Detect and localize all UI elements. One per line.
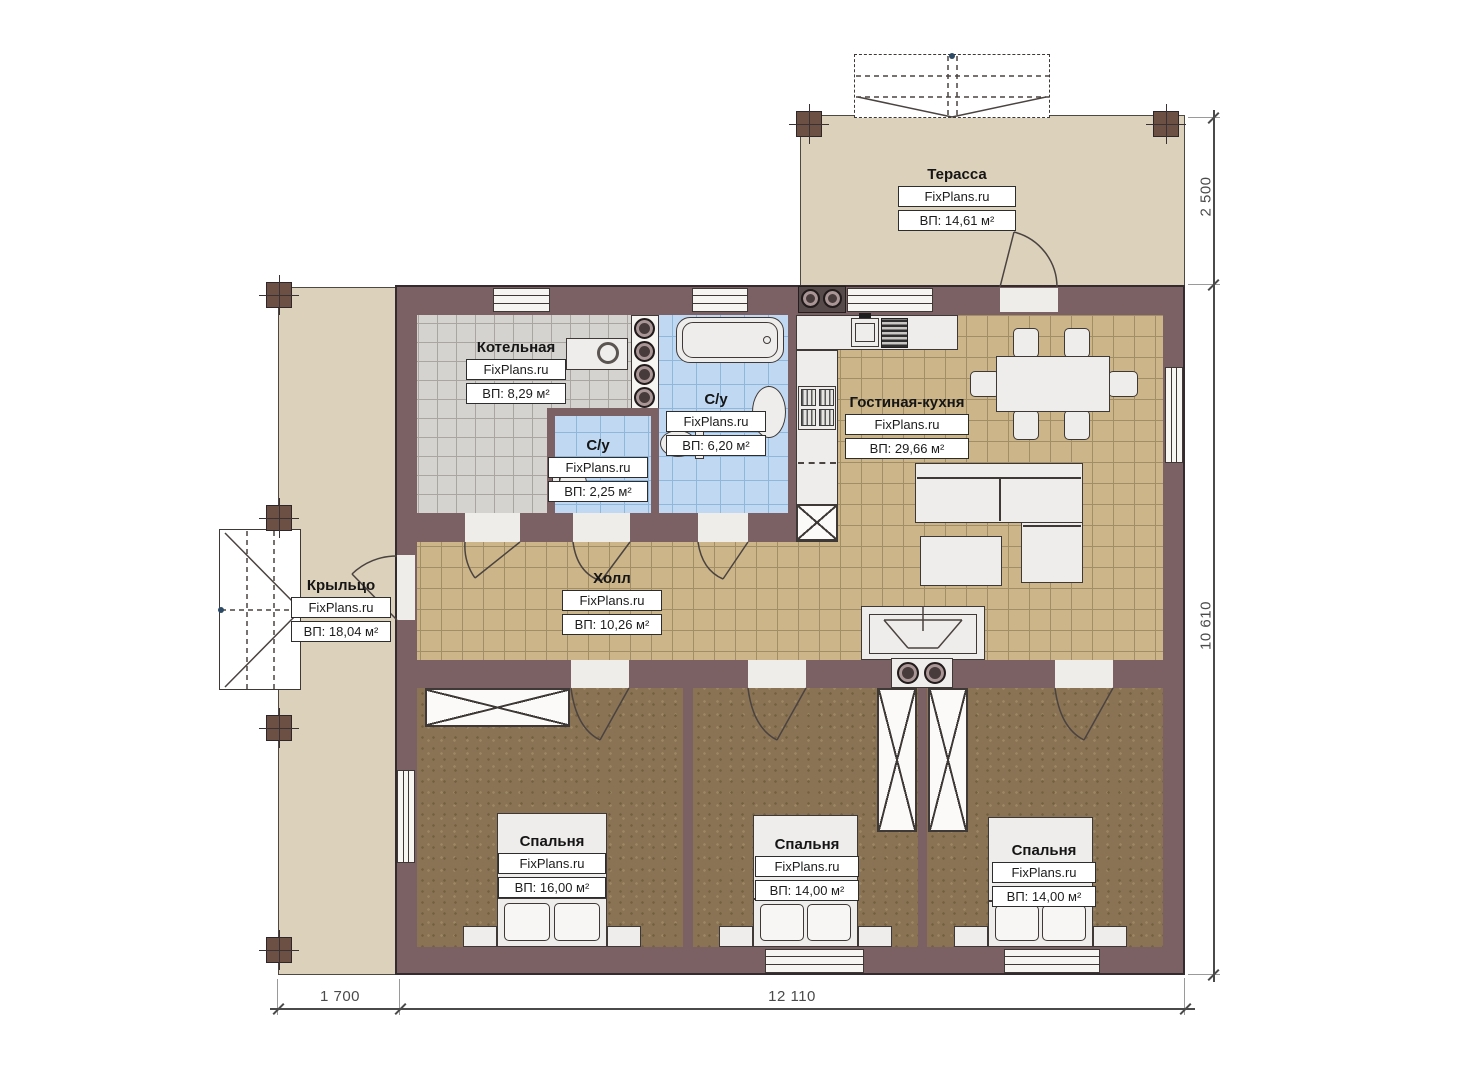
boiler-tank-icon	[634, 318, 655, 339]
brand-label: FixPlans.ru	[992, 862, 1096, 883]
bedroom-2-door-opening	[748, 660, 806, 688]
room-title: Котельная	[466, 339, 566, 356]
fireplace-inner	[869, 614, 977, 654]
nightstand	[719, 926, 753, 947]
stove-grate-icon	[819, 409, 834, 426]
dining-chair	[1013, 410, 1039, 440]
bedroom-2-3-wall	[918, 688, 927, 947]
bedroom-1-door-opening	[571, 660, 629, 688]
bed-3-pillow	[1042, 905, 1086, 941]
room-label-bathroom-small: С/у FixPlans.ru ВП: 2,25 м²	[548, 437, 648, 502]
dimension-line-right	[1213, 110, 1215, 982]
area-label: ВП: 16,00 м²	[498, 877, 606, 898]
room-label-bathroom-large: С/у FixPlans.ru ВП: 6,20 м²	[666, 391, 766, 456]
room-title: Спальня	[755, 836, 859, 853]
brand-label: FixPlans.ru	[291, 597, 391, 618]
washing-machine-door-icon	[597, 342, 619, 364]
room-title: Спальня	[498, 833, 606, 850]
living-window	[1165, 367, 1183, 463]
area-label: ВП: 29,66 м²	[845, 438, 969, 459]
dining-chair	[1013, 328, 1039, 358]
area-label: ВП: 14,00 м²	[755, 880, 859, 901]
dining-chair	[1064, 328, 1090, 358]
room-label-bedroom-3: Спальня FixPlans.ru ВП: 14,00 м²	[992, 842, 1096, 907]
brand-label: FixPlans.ru	[845, 414, 969, 435]
kitchen-window	[847, 288, 933, 312]
cooktop-burner-icon	[801, 289, 820, 308]
kitchen-faucet-icon	[859, 313, 871, 318]
porch-post	[266, 282, 292, 308]
bed-2-pillow	[760, 904, 804, 941]
terrace-post	[796, 111, 822, 137]
nightstand	[463, 926, 497, 947]
dimension-line-bottom	[270, 1008, 1195, 1010]
room-label-bedroom-2: Спальня FixPlans.ru ВП: 14,00 м²	[755, 836, 859, 901]
area-label: ВП: 10,26 м²	[562, 614, 662, 635]
bathroom-small-door-opening	[573, 513, 630, 542]
flue-pipe-icon	[924, 662, 946, 684]
bedroom-3-window	[1004, 949, 1100, 973]
brand-label: FixPlans.ru	[548, 457, 648, 478]
cooktop-burner-icon	[823, 289, 842, 308]
boiler-tank-icon	[634, 364, 655, 385]
room-label-terrace: Терасса FixPlans.ru ВП: 14,61 м²	[898, 166, 1016, 231]
brand-label: FixPlans.ru	[898, 186, 1016, 207]
boiler-tank-icon	[634, 387, 655, 408]
stove-grate-icon	[819, 389, 834, 406]
porch-post	[266, 715, 292, 741]
porch-post	[266, 937, 292, 963]
dishwasher	[881, 318, 908, 348]
room-title: Холл	[562, 570, 662, 587]
kitchen-sink-basin	[855, 323, 875, 342]
nightstand	[858, 926, 892, 947]
bedroom-2-window	[765, 949, 864, 973]
wardrobe-bedroom-3	[928, 688, 968, 832]
dimension-porch-width: 1 700	[305, 988, 375, 1005]
area-label: ВП: 18,04 м²	[291, 621, 391, 642]
sofa-chaise-line	[1023, 525, 1081, 527]
area-label: ВП: 2,25 м²	[548, 481, 648, 502]
brand-label: FixPlans.ru	[498, 853, 606, 874]
entry-door-opening	[397, 555, 415, 620]
coffee-table	[920, 536, 1002, 586]
terrace-steps	[854, 54, 1050, 118]
flue-pipe-icon	[897, 662, 919, 684]
bedroom-1-2-wall	[683, 688, 693, 947]
dimension-house-width: 12 110	[752, 988, 832, 1005]
brand-label: FixPlans.ru	[755, 856, 859, 877]
room-title: С/у	[666, 391, 766, 408]
room-label-boiler: Котельная FixPlans.ru ВП: 8,29 м²	[466, 339, 566, 404]
area-label: ВП: 8,29 м²	[466, 383, 566, 404]
room-label-hall: Холл FixPlans.ru ВП: 10,26 м²	[562, 570, 662, 635]
bathroom-large-door-opening	[698, 513, 748, 542]
bedroom-1-window	[397, 770, 415, 863]
wardrobe-bedroom-1	[425, 688, 570, 727]
bedroom-3-door-opening	[1055, 660, 1113, 688]
porch-steps	[219, 529, 301, 690]
room-title: Гостиная-кухня	[845, 394, 969, 411]
area-label: ВП: 14,61 м²	[898, 210, 1016, 231]
nightstand	[954, 926, 988, 947]
room-label-living-kitchen: Гостиная-кухня FixPlans.ru ВП: 29,66 м²	[845, 394, 969, 459]
dining-table	[996, 356, 1110, 412]
terrace-post	[1153, 111, 1179, 137]
porch-post	[266, 505, 292, 531]
dimension-terrace-depth: 2 500	[1198, 162, 1215, 232]
area-label: ВП: 6,20 м²	[666, 435, 766, 456]
bed-2-pillow	[807, 904, 851, 941]
boiler-door-opening	[465, 513, 520, 542]
room-title: Крыльцо	[291, 577, 391, 594]
room-title: С/у	[548, 437, 648, 454]
boiler-window	[493, 288, 550, 312]
brand-label: FixPlans.ru	[466, 359, 566, 380]
room-title: Терасса	[898, 166, 1016, 183]
nightstand	[607, 926, 641, 947]
bed-1-pillow	[504, 903, 550, 941]
bathroom-window	[692, 288, 748, 312]
bathroom-kitchen-wall	[788, 315, 796, 542]
fridge	[796, 504, 838, 541]
room-title: Спальня	[992, 842, 1096, 859]
stove-grate-icon	[801, 389, 816, 406]
bathtub-drain-icon	[763, 336, 771, 344]
dining-chair	[1108, 371, 1138, 397]
stove-grate-icon	[801, 409, 816, 426]
room-label-bedroom-1: Спальня FixPlans.ru ВП: 16,00 м²	[498, 833, 606, 898]
area-label: ВП: 14,00 м²	[992, 886, 1096, 907]
boiler-tank-icon	[634, 341, 655, 362]
nightstand	[1093, 926, 1127, 947]
brand-label: FixPlans.ru	[666, 411, 766, 432]
room-label-porch: Крыльцо FixPlans.ru ВП: 18,04 м²	[291, 577, 391, 642]
counter-dashed-edge	[798, 462, 836, 464]
floor-plan: Терасса FixPlans.ru ВП: 14,61 м² Котельн…	[0, 0, 1473, 1080]
dimension-house-depth: 10 610	[1198, 591, 1215, 661]
terrace-door-opening	[1000, 288, 1058, 312]
wardrobe-bedroom-2	[877, 688, 917, 832]
bed-1-pillow	[554, 903, 600, 941]
sofa-cushion-line	[999, 479, 1001, 521]
dining-chair	[1064, 410, 1090, 440]
brand-label: FixPlans.ru	[562, 590, 662, 611]
bed-3-pillow	[995, 905, 1039, 941]
